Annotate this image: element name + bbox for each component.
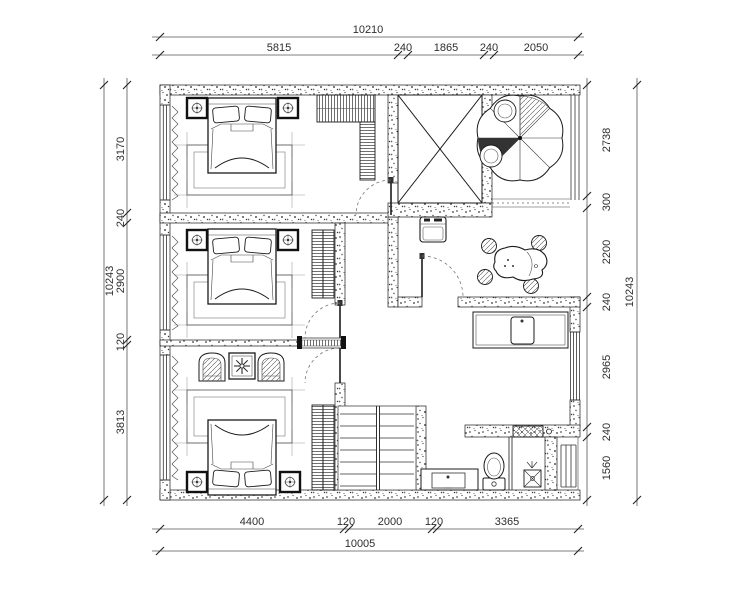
dim-right-seg: 240	[601, 293, 613, 311]
dim-top-seg: 5815	[267, 42, 291, 54]
dim-right-seg: 2965	[601, 355, 613, 379]
dim-bottom-seg: 4400	[240, 516, 264, 528]
dim-top-seg: 240	[394, 42, 412, 54]
door-kitchen	[420, 253, 464, 297]
appliance	[420, 217, 446, 242]
dim-left-seg: 3813	[115, 410, 127, 434]
nightstand	[278, 98, 298, 118]
armchair	[258, 353, 284, 381]
dim-left-seg: 240	[115, 209, 127, 227]
vanity-basin	[421, 469, 478, 490]
window-left-2	[160, 235, 178, 330]
stool	[532, 236, 547, 251]
nightstand	[278, 230, 298, 250]
window-left-1	[160, 105, 178, 200]
dim-top-seg: 1865	[434, 42, 458, 54]
wardrobe-bed3	[312, 405, 334, 490]
nightstand	[187, 98, 207, 118]
wardrobe-bed2	[312, 230, 334, 298]
dim-top-seg: 2050	[524, 42, 548, 54]
floor-drain	[524, 461, 541, 487]
wall-stub	[398, 297, 422, 307]
nightstand	[187, 472, 207, 492]
nightstand	[280, 472, 300, 492]
dim-right-seg: 2200	[601, 240, 613, 264]
terrace-beam	[492, 199, 570, 207]
window-shower	[561, 437, 578, 490]
dim-right-seg: 1560	[601, 456, 613, 480]
wall-right-seg	[570, 400, 580, 427]
dim-right-total: 10243	[624, 277, 636, 308]
terrace-chair	[494, 100, 516, 122]
dim-bottom-seg: 120	[425, 516, 443, 528]
wardrobe-bed1-side	[360, 122, 375, 180]
partition-corridor	[160, 340, 300, 346]
dim-right-seg: 300	[601, 193, 613, 211]
stool	[482, 239, 497, 254]
terrace-chair	[480, 145, 502, 167]
potted-plant-table	[229, 353, 255, 379]
double-bed-2	[208, 229, 276, 304]
wardrobe-bed1-top	[317, 95, 375, 122]
dim-right-seg: 2738	[601, 128, 613, 152]
tea-table-set	[478, 236, 547, 294]
floor-plan-canvas: 10210 5815 240 1865 240 2050 4400 120 20…	[0, 0, 740, 592]
dim-top-total: 10210	[353, 24, 384, 36]
terrace-railing	[571, 95, 579, 200]
staircase	[338, 406, 416, 490]
dim-left-seg: 3170	[115, 137, 127, 161]
wall-hall-kitchen	[458, 297, 580, 307]
wall-top	[160, 85, 580, 95]
double-bed-1	[208, 98, 276, 173]
dim-left: 10243 3170 240 2900 120 3813	[100, 78, 131, 506]
wall-left-seg	[160, 480, 170, 500]
dim-left-seg: 2900	[115, 269, 127, 293]
dim-top: 10210 5815 240 1865 240 2050	[152, 24, 584, 59]
armchair	[199, 353, 225, 381]
stool	[478, 270, 493, 285]
wall-bed1-bed2	[160, 213, 398, 223]
door-bedroom-2	[305, 300, 343, 338]
sliding-door	[297, 336, 346, 349]
double-bed-3	[208, 420, 276, 495]
dim-right-seg: 240	[601, 423, 613, 441]
elevator-shaft	[398, 95, 482, 203]
dim-bottom: 4400 120 2000 120 3365 10005	[152, 516, 584, 555]
dim-right: 2738 300 2200 240 2965 240 1560 10243	[583, 78, 641, 506]
kitchen-counter	[473, 312, 568, 348]
dim-bottom-seg: 120	[337, 516, 355, 528]
wall-left-seg	[160, 85, 170, 105]
dim-left-seg: 120	[115, 333, 127, 351]
toilet	[483, 453, 505, 490]
wall-shaft-south	[388, 203, 492, 217]
dim-bottom-seg: 2000	[378, 516, 402, 528]
tea-table	[494, 246, 547, 280]
dim-top-seg: 240	[480, 42, 498, 54]
window-left-3	[160, 355, 178, 480]
dim-bottom-total: 10005	[345, 538, 376, 550]
floor-plan-page: 10210 5815 240 1865 240 2050 4400 120 20…	[0, 0, 740, 592]
parasol-table	[477, 95, 563, 181]
wall-hall-upper	[388, 95, 398, 183]
shower-partition	[509, 437, 512, 490]
wall-shower-east	[545, 437, 557, 490]
wall-hall-lower	[388, 217, 398, 307]
door-bedroom-3	[305, 348, 340, 383]
wall-bed2-east	[335, 223, 345, 305]
dim-bottom-seg: 3365	[495, 516, 519, 528]
window-right-kitchen	[570, 332, 580, 400]
nightstand	[187, 230, 207, 250]
